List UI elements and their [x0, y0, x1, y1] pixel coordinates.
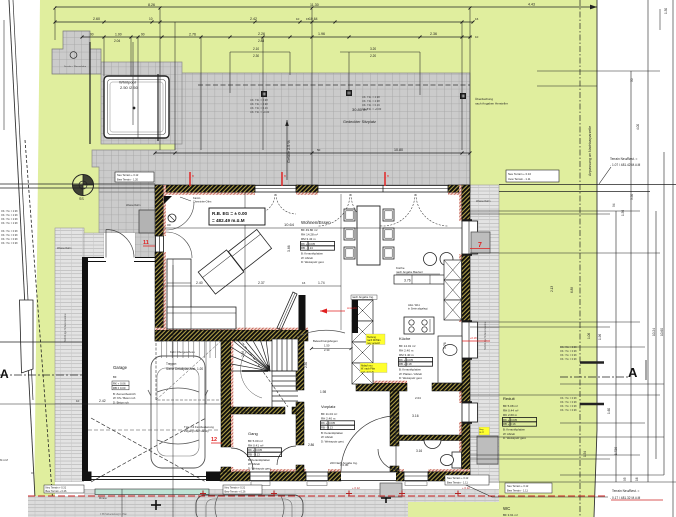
svg-text:3.16: 3.16	[416, 449, 422, 453]
svg-text:nach Angabe Bauherr: nach Angabe Bauherr	[396, 270, 423, 274]
svg-text:OK. f St. = 0.98: OK. f St. = 0.98	[560, 409, 577, 412]
svg-text:3.16: 3.16	[412, 414, 419, 418]
svg-text:RH 0.41 m²: RH 0.41 m²	[248, 444, 263, 448]
svg-text:RK + 0.035: RK + 0.035	[248, 448, 263, 452]
svg-text:OK. f St. = 0.98: OK. f St. = 0.98	[560, 397, 577, 400]
svg-text:OK. f St. = 0.98: OK. f St. = 0.98	[560, 354, 577, 357]
svg-text:10.64: 10.64	[284, 222, 295, 227]
svg-text:3.50: 3.50	[630, 194, 634, 200]
svg-text:+0.18: +0.18	[470, 336, 477, 340]
svg-text:12: 12	[211, 437, 217, 443]
svg-text:2.20: 2.20	[370, 54, 376, 58]
svg-text:Gedeckter Sitzplatz: Gedeckter Sitzplatz	[343, 120, 376, 124]
svg-text:OK. f St. = 0.98: OK. f St. = 0.98	[560, 358, 577, 361]
svg-text:R.B. EG = ± 0.00: R.B. EG = ± 0.00	[212, 211, 248, 216]
svg-text:Abst. W11: Abst. W11	[408, 303, 420, 307]
svg-text:1.60: 1.60	[607, 408, 611, 414]
svg-text:Bew Terrain - 1.11: Bew Terrain - 1.11	[507, 488, 528, 492]
svg-text:Ansicht: Ansicht	[347, 306, 357, 310]
svg-text:3.66: 3.66	[287, 245, 291, 252]
svg-text:Cheminée-Ofen: Cheminée-Ofen	[193, 200, 212, 204]
svg-text:Neu Terrain + 0.10: Neu Terrain + 0.10	[508, 172, 531, 176]
svg-text:50: 50	[317, 148, 321, 152]
svg-text:RH 0.44 m²: RH 0.44 m²	[503, 409, 518, 413]
svg-text:1.726: 1.726	[614, 447, 618, 455]
svg-text:Siehe Detailplan Mst. 1:20: Siehe Detailplan Mst. 1:20	[166, 367, 203, 371]
svg-text:= 482.49 m.ü.M: = 482.49 m.ü.M	[212, 218, 245, 223]
svg-text:RB + 0.18: RB + 0.18	[399, 362, 412, 366]
svg-text:1.06: 1.06	[587, 333, 591, 339]
svg-text:A: A	[0, 367, 9, 381]
svg-text:D: Weissputz gest.: D: Weissputz gest.	[503, 436, 526, 440]
svg-text:Dusche + Wasserhahn: Dusche + Wasserhahn	[64, 65, 87, 68]
svg-text:RK + 0.06: RK + 0.06	[113, 382, 126, 386]
svg-text:UK. f St. = 2.98: UK. f St. = 2.98	[362, 99, 380, 103]
svg-text:Kehr Obergeschoss: Kehr Obergeschoss	[170, 350, 195, 354]
svg-text:2.88: 2.88	[258, 39, 264, 43]
svg-text:B: B	[284, 174, 286, 178]
svg-text:2.60: 2.60	[93, 17, 100, 21]
svg-text:D: Weissputz gest.: D: Weissputz gest.	[399, 376, 422, 380]
svg-text:RB - 0.13: RB - 0.13	[248, 453, 260, 457]
svg-text:16: 16	[635, 477, 639, 481]
svg-text:D: Weissputz gest.: D: Weissputz gest.	[248, 466, 271, 470]
svg-text:nach Angabe Ing.: nach Angabe Ing.	[352, 295, 374, 299]
svg-text:Kamin: Kamin	[193, 196, 201, 200]
svg-text:UK. f St. = 0.19: UK. f St. = 0.19	[250, 106, 268, 110]
svg-text:M.ü.M: M.ü.M	[0, 458, 8, 462]
svg-text:4.00: 4.00	[636, 124, 640, 130]
svg-text:2.39: 2.39	[241, 351, 245, 357]
svg-text:1.50: 1.50	[324, 344, 330, 348]
svg-text:1.56: 1.56	[621, 210, 625, 216]
svg-text:10.60: 10.60	[660, 328, 664, 336]
svg-text:Bew Terrain - 1.11: Bew Terrain - 1.11	[447, 480, 468, 484]
svg-text:OK. f St. = 0.98: OK. f St. = 0.98	[560, 401, 577, 404]
svg-text:OK. f St. = 2.98: OK. f St. = 2.98	[1, 214, 18, 217]
svg-text:Sichtb.lge M.betonsteine: Sichtb.lge M.betonsteine	[483, 321, 487, 350]
svg-text:RH 14.28 m²: RH 14.28 m²	[301, 233, 318, 237]
svg-text:Vorplatz: Vorplatz	[321, 404, 335, 409]
svg-text:95: 95	[623, 477, 627, 481]
svg-text:2.76: 2.76	[189, 33, 196, 37]
svg-text:11: 11	[143, 240, 149, 246]
svg-text:RM 3.43 m: RM 3.43 m	[301, 237, 316, 241]
svg-text:Wasserhahn: Wasserhahn	[476, 199, 491, 203]
svg-text:BF 5.00 m²: BF 5.00 m²	[248, 439, 263, 443]
svg-text:2.50: 2.50	[304, 362, 308, 368]
svg-text:Wasserhahn: Wasserhahn	[126, 203, 141, 207]
svg-text:OK. f St. = 0.98: OK. f St. = 0.98	[1, 234, 18, 237]
svg-text:Neu Terrain + 0.12: Neu Terrain + 0.12	[507, 484, 529, 488]
svg-text:Reduit: Reduit	[503, 396, 515, 401]
svg-text:2.10: 2.10	[253, 47, 259, 51]
svg-text:4.43: 4.43	[528, 3, 535, 7]
svg-text:7: 7	[478, 242, 482, 249]
svg-text:in Serie abgelegt: in Serie abgelegt	[408, 307, 428, 311]
svg-text:Bew Terrain - 1.20: Bew Terrain - 1.20	[117, 178, 139, 182]
svg-text:RB ± 0.00: RB ± 0.00	[113, 386, 126, 390]
svg-text:nach Angaben Hersteller: nach Angaben Hersteller	[475, 102, 508, 106]
svg-text:RB - 0.13: RB - 0.13	[321, 426, 333, 430]
svg-text:BF 11.04 m²: BF 11.04 m²	[321, 412, 337, 416]
svg-text:3.76: 3.76	[443, 342, 447, 349]
svg-text:BF 14.01 m²: BF 14.01 m²	[399, 344, 416, 348]
svg-text:10: 10	[475, 35, 479, 39]
svg-text:Neu Terrain + 0.12: Neu Terrain + 0.12	[447, 476, 469, 480]
svg-text:RH 2.40 m: RH 2.40 m	[321, 417, 336, 421]
svg-text:90: 90	[90, 33, 94, 37]
svg-text:1.74: 1.74	[318, 281, 325, 285]
svg-text:Bew Terrain + 0.26: Bew Terrain + 0.26	[225, 490, 246, 493]
svg-text:2.36: 2.36	[430, 32, 437, 36]
svg-text:BF: BF	[113, 375, 117, 379]
svg-text:3.20: 3.20	[370, 47, 376, 51]
svg-text:Bew Terrain + 0.26: Bew Terrain + 0.26	[46, 490, 67, 493]
svg-text:±0: ±0	[31, 471, 35, 475]
svg-text:Wasserhahn: Wasserhahn	[57, 246, 72, 250]
svg-text:Gang: Gang	[248, 431, 258, 436]
svg-text:UK. f St. = 2.98: UK. f St. = 2.98	[250, 98, 268, 102]
svg-text:neu versetzt: neu versetzt	[367, 342, 380, 345]
svg-text:Überdachung: Überdachung	[475, 97, 493, 101]
svg-text:6.89: 6.89	[570, 287, 574, 293]
svg-text:WC: WC	[503, 506, 510, 511]
svg-text:- 0.17 / 481.32 M.ü.M: - 0.17 / 481.32 M.ü.M	[610, 496, 641, 500]
svg-text:- 1.07 / 481.42 M.ü.M: - 1.07 / 481.42 M.ü.M	[610, 163, 641, 167]
svg-text:2.30: 2.30	[253, 54, 259, 58]
svg-text:30.80 m²: 30.80 m²	[352, 107, 368, 112]
svg-text:94: 94	[612, 203, 616, 207]
svg-text:2.40: 2.40	[196, 281, 203, 285]
svg-text:OK. f St. = 0.98: OK. f St. = 0.98	[560, 346, 577, 349]
svg-text:Gefälle 2.5 %: Gefälle 2.5 %	[287, 140, 291, 163]
svg-text:16: 16	[302, 281, 306, 285]
svg-text:B.27: B.27	[480, 432, 485, 434]
svg-text:OK. f St. = 0.98: OK. f St. = 0.98	[1, 238, 18, 241]
svg-text:Wasserbezugsort 2.0: Wasserbezugsort 2.0	[241, 410, 266, 414]
svg-text:1.54: 1.54	[583, 451, 587, 457]
svg-text:Neu Terrain + 0.31: Neu Terrain + 0.31	[225, 487, 246, 490]
svg-text:Treppe:: Treppe:	[166, 362, 177, 366]
svg-text:W. nach Plän: W. nach Plän	[361, 368, 376, 371]
svg-text:1.96: 1.96	[318, 32, 325, 36]
svg-text:11.30: 11.30	[310, 3, 319, 7]
svg-text:2.04: 2.04	[114, 39, 120, 43]
svg-text:2.26: 2.26	[258, 32, 265, 36]
svg-text:BF 3.91 m²: BF 3.91 m²	[503, 513, 518, 517]
svg-text:220 Nach Angabe Ing.: 220 Nach Angabe Ing.	[330, 461, 358, 465]
svg-text:OK. f St. = 2.98: OK. f St. = 2.98	[1, 222, 18, 225]
svg-text:RK + 0.035: RK + 0.035	[301, 242, 316, 246]
svg-text:10: 10	[296, 17, 300, 21]
svg-text:16: 16	[475, 17, 479, 21]
svg-text:2.86: 2.86	[308, 443, 314, 447]
svg-text:SS: SS	[79, 197, 84, 201]
svg-text:RK 2.60 m: RK 2.60 m	[503, 413, 518, 417]
svg-text:2.42: 2.42	[250, 17, 257, 21]
svg-text:B: B	[387, 174, 389, 178]
svg-text:RK + 0.035: RK + 0.035	[503, 418, 518, 422]
svg-text:Küche: Küche	[399, 336, 411, 341]
svg-text:50: 50	[630, 78, 634, 82]
svg-text:OK. f St. = 2.98: OK. f St. = 2.98	[1, 218, 18, 221]
svg-text:10.64: 10.64	[309, 17, 318, 21]
svg-text:D: Weissputz gest.: D: Weissputz gest.	[301, 260, 324, 264]
svg-text:8.26: 8.26	[148, 3, 155, 7]
svg-text:RB - 0.13: RB - 0.13	[301, 246, 313, 250]
svg-text:OK. f St. = 0.98: OK. f St. = 0.98	[560, 405, 577, 408]
svg-text:1.00: 1.00	[115, 33, 122, 37]
svg-text:Wohnen/Essen: Wohnen/Essen	[301, 220, 331, 225]
svg-text:1.98: 1.98	[320, 390, 326, 394]
svg-text:Uew Terrain - 1.11: Uew Terrain - 1.11	[508, 177, 531, 181]
svg-text:Beleuchtungsbogen: Beleuchtungsbogen	[313, 339, 338, 343]
svg-text:Zugang über Handy: Zugang über Handy	[184, 429, 209, 433]
svg-text:OK. f St. = 0.98: OK. f St. = 0.98	[560, 350, 577, 353]
svg-text:Neu Terrain + 0.12: Neu Terrain + 0.12	[117, 173, 139, 177]
svg-text:+ 0.12: + 0.12	[352, 486, 360, 490]
svg-text:10.24: 10.24	[652, 328, 656, 336]
svg-text:BF 49.80 m²: BF 49.80 m²	[301, 228, 318, 232]
svg-text:2.50 /2.50: 2.50 /2.50	[120, 85, 139, 90]
svg-text:Garage: Garage	[113, 365, 128, 370]
svg-text:10: 10	[149, 17, 153, 21]
svg-text:Terrain Neu/Best. =: Terrain Neu/Best. =	[610, 157, 638, 161]
svg-text:3.76: 3.76	[404, 279, 411, 283]
svg-text:RB + 0.16: RB + 0.16	[503, 422, 516, 426]
svg-text:Anpassung an Nachbarparzelle: Anpassung an Nachbarparzelle	[588, 126, 592, 176]
svg-text:10: 10	[76, 399, 80, 403]
svg-text:2.42: 2.42	[99, 399, 106, 403]
svg-text:16: 16	[222, 399, 226, 403]
svg-text:OK. f St. = 0.98: OK. f St. = 0.98	[1, 242, 18, 245]
svg-text:Terrain Neu/Best. =: Terrain Neu/Best. =	[612, 489, 640, 493]
svg-text:OK. f St. = 2.98: OK. f St. = 2.98	[1, 210, 18, 213]
svg-text:vorh. ab K-Pl: vorh. ab K-Pl	[361, 370, 374, 373]
svg-text:Sichtb.lge M.betonsteine: Sichtb.lge M.betonsteine	[63, 313, 67, 342]
svg-text:BF 5.08 m²: BF 5.08 m²	[503, 404, 518, 408]
svg-text:OK. f St. = 0.98: OK. f St. = 0.98	[1, 230, 18, 233]
svg-text:D: Weissputz gest.: D: Weissputz gest.	[321, 439, 344, 443]
svg-text:10.80: 10.80	[394, 148, 403, 152]
svg-text:1.96: 1.96	[598, 334, 602, 340]
svg-text:90: 90	[141, 33, 145, 37]
svg-text:RK + 0.035: RK + 0.035	[321, 421, 336, 425]
svg-text:A: A	[628, 365, 638, 380]
svg-text:Rinne: Rinne	[99, 496, 107, 500]
svg-text:OF: OF	[167, 223, 171, 227]
svg-text:RM 3.40 m: RM 3.40 m	[399, 353, 414, 357]
svg-text:2.13: 2.13	[550, 286, 554, 292]
svg-text:± 85 Sickerleitung lt. Plan: ± 85 Sickerleitung lt. Plan	[100, 513, 128, 516]
svg-text:RH 2.40 m: RH 2.40 m	[399, 349, 414, 353]
svg-text:UK. f St. = +0.00: UK. f St. = +0.00	[250, 110, 270, 114]
svg-text:UK. f St. = 2.98: UK. f St. = 2.98	[362, 95, 380, 99]
svg-text:B: B	[192, 174, 194, 178]
svg-text:+ 0.12: + 0.12	[462, 486, 470, 490]
svg-text:UK. f St. = 2.98: UK. f St. = 2.98	[250, 102, 268, 106]
svg-text:RK + 0.035: RK + 0.035	[399, 358, 414, 362]
svg-text:2.04: 2.04	[415, 396, 421, 400]
svg-text:2.37: 2.37	[258, 281, 265, 285]
svg-text:D: Beton roh: D: Beton roh	[113, 400, 129, 404]
svg-text:1.30: 1.30	[664, 8, 668, 14]
